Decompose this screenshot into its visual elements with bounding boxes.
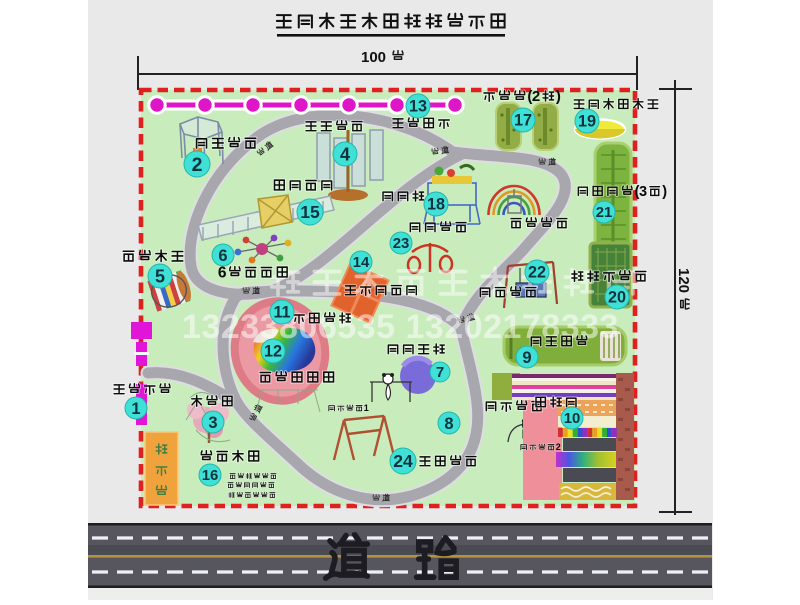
svg-text:14: 14 xyxy=(353,255,370,271)
svg-text:2: 2 xyxy=(556,442,561,452)
svg-text:15: 15 xyxy=(300,202,320,222)
svg-text:11: 11 xyxy=(273,304,290,322)
svg-text:21: 21 xyxy=(596,205,613,221)
svg-text:1: 1 xyxy=(364,403,369,413)
svg-text:17: 17 xyxy=(514,112,532,130)
svg-text:3: 3 xyxy=(208,414,217,432)
svg-text:13: 13 xyxy=(409,98,427,116)
svg-text:10: 10 xyxy=(564,411,581,427)
svg-text:2: 2 xyxy=(532,88,540,105)
svg-text:6: 6 xyxy=(218,247,227,265)
svg-text:9: 9 xyxy=(522,349,531,367)
svg-text:6: 6 xyxy=(218,264,227,281)
svg-text:): ) xyxy=(556,88,561,105)
svg-text:100: 100 xyxy=(361,49,386,66)
svg-text:5: 5 xyxy=(155,266,165,286)
svg-text:18: 18 xyxy=(427,196,445,214)
svg-text:2: 2 xyxy=(192,154,203,176)
svg-text:12: 12 xyxy=(264,343,282,361)
svg-text:7: 7 xyxy=(436,364,444,381)
svg-text:120: 120 xyxy=(675,268,692,293)
svg-text:4: 4 xyxy=(340,144,350,164)
svg-text:22: 22 xyxy=(528,264,546,282)
svg-text:16: 16 xyxy=(202,468,219,484)
svg-text:20: 20 xyxy=(608,289,626,307)
svg-text:24: 24 xyxy=(393,451,413,471)
svg-text:3: 3 xyxy=(639,184,647,200)
svg-text:23: 23 xyxy=(393,236,410,252)
svg-text:): ) xyxy=(662,184,667,200)
svg-text:1: 1 xyxy=(131,400,140,418)
svg-text:19: 19 xyxy=(578,113,596,131)
svg-text:8: 8 xyxy=(444,415,453,433)
